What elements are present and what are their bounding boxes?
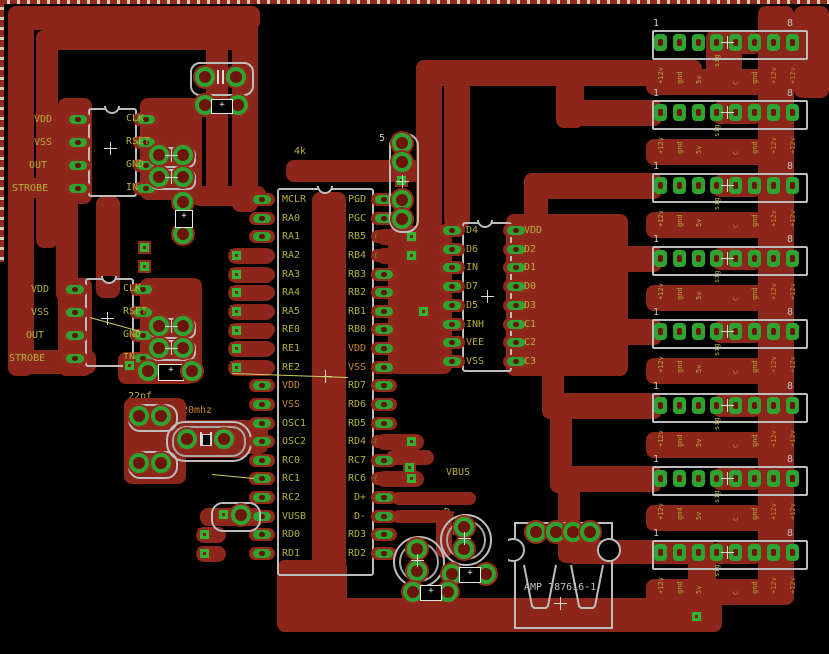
pin-net-label: +12v — [657, 343, 666, 373]
net-label: RB4 — [288, 250, 366, 261]
pad[interactable] — [136, 359, 160, 383]
origin-cross-icon — [721, 179, 734, 192]
pin-net-label: C — [732, 198, 741, 228]
pin-pad[interactable] — [692, 323, 705, 340]
pin-pad[interactable] — [767, 470, 780, 487]
via-pad[interactable] — [230, 286, 243, 299]
pin-net-label: +12v — [657, 197, 666, 227]
via-pad[interactable] — [230, 342, 243, 355]
pin-pad[interactable] — [654, 177, 667, 194]
pad[interactable] — [65, 182, 91, 195]
pin-pad[interactable] — [654, 397, 667, 414]
pin-pad[interactable] — [673, 470, 686, 487]
net-label: C3 — [524, 356, 536, 367]
origin-cross-icon — [721, 472, 734, 485]
pin-net-label: gnd — [751, 343, 760, 373]
pad[interactable] — [62, 283, 88, 296]
pin-net-label: +12v — [770, 124, 779, 154]
net-label: RB0 — [288, 324, 366, 335]
pad[interactable] — [249, 212, 275, 225]
pin-pad[interactable] — [692, 397, 705, 414]
origin-cross-icon — [721, 325, 734, 338]
pad[interactable] — [371, 361, 397, 374]
pin-net-label: 5v — [695, 343, 704, 373]
header-pin8-label: 8 — [787, 381, 793, 392]
pad[interactable] — [371, 305, 397, 318]
origin-cross-icon — [481, 290, 494, 303]
pin-net-label: +12v — [789, 417, 798, 447]
pad[interactable] — [65, 136, 91, 149]
net-label: RB2 — [288, 287, 366, 298]
pin-pad[interactable] — [692, 250, 705, 267]
origin-cross-icon — [721, 36, 734, 49]
header-pin1-label: 1 — [653, 234, 659, 245]
pin-pad[interactable] — [786, 177, 799, 194]
pad[interactable] — [229, 503, 253, 527]
pad[interactable] — [212, 427, 236, 451]
pin-net-label: +12v — [657, 54, 666, 84]
pin-pad[interactable] — [767, 544, 780, 561]
pin-net-label: gnd — [676, 124, 685, 154]
origin-cross-icon — [411, 554, 424, 567]
pin-pad[interactable] — [767, 397, 780, 414]
net-label: D+ — [288, 492, 366, 503]
pad[interactable] — [371, 286, 397, 299]
pad[interactable] — [127, 451, 151, 475]
pin-net-label: +12v — [789, 54, 798, 84]
capacitor-symbol-icon — [217, 70, 219, 84]
pin-net-label: C — [732, 125, 741, 155]
board-edge-top — [0, 0, 829, 4]
origin-cross-icon — [721, 399, 734, 412]
pin-net-label: gnd — [676, 270, 685, 300]
pin-pad[interactable] — [748, 34, 761, 51]
net-label: RD6 — [288, 399, 366, 410]
pin-net-label: +12v — [789, 343, 798, 373]
pin-pad[interactable] — [786, 470, 799, 487]
pin-net-label: 5v — [695, 124, 704, 154]
pin-net-label: gnd — [751, 270, 760, 300]
via-pad[interactable] — [230, 305, 243, 318]
pad[interactable] — [371, 323, 397, 336]
pin-pad[interactable] — [767, 104, 780, 121]
resistor-body[interactable]: + — [175, 210, 193, 228]
net-label: D- — [288, 511, 366, 522]
board-edge-left — [0, 0, 4, 262]
header-pin8-label: 8 — [787, 528, 793, 539]
pin-pad[interactable] — [692, 34, 705, 51]
header-pin8-label: 8 — [787, 18, 793, 29]
origin-cross-icon — [554, 597, 567, 610]
net-label: D5 — [466, 300, 478, 311]
pad[interactable] — [249, 547, 275, 560]
net-label: STROBE — [12, 183, 48, 194]
pad[interactable] — [390, 207, 414, 231]
pin-net-label: +12v — [770, 490, 779, 520]
net-label: D0 — [524, 281, 536, 292]
pin-net-label: gnd — [676, 343, 685, 373]
pin-net-label: gnd — [751, 490, 760, 520]
net-label: VEE — [466, 337, 484, 348]
pad[interactable] — [439, 224, 465, 237]
net-label: D3 — [524, 300, 536, 311]
pin-net-label: C — [732, 418, 741, 448]
net-label: RB1 — [288, 306, 366, 317]
pin-pad[interactable] — [692, 470, 705, 487]
pin-pad[interactable] — [654, 470, 667, 487]
pin-net-label: +12v — [789, 490, 798, 520]
pin-pad[interactable] — [748, 470, 761, 487]
net-label: D1 — [524, 262, 536, 273]
header-pin1-label: 1 — [653, 18, 659, 29]
crystal-symbol-box — [202, 434, 211, 446]
copper-trace[interactable] — [392, 492, 476, 505]
pad[interactable] — [371, 417, 397, 430]
pin-pad[interactable] — [673, 323, 686, 340]
net-label: INH — [466, 319, 484, 330]
pad[interactable] — [249, 454, 275, 467]
pin-pad[interactable] — [692, 177, 705, 194]
net-label: RD4 — [288, 436, 366, 447]
net-label: RD3 — [288, 529, 366, 540]
pin-net-label: C — [732, 491, 741, 521]
pin-net-label: +12v — [657, 417, 666, 447]
via-pad[interactable] — [230, 268, 243, 281]
pin-pad[interactable] — [748, 104, 761, 121]
via-pad[interactable] — [198, 528, 211, 541]
net-label: PGD — [288, 194, 366, 205]
pin-net-label: 5v — [695, 564, 704, 594]
header-pin1-label: 1 — [653, 454, 659, 465]
pad[interactable] — [371, 398, 397, 411]
pin-net-label: +12v — [657, 490, 666, 520]
net-label: IN — [466, 262, 478, 273]
net-label: RD2 — [288, 548, 366, 559]
pin-net-label: +12v — [770, 270, 779, 300]
pad[interactable] — [249, 398, 275, 411]
pcb-board-view: 4k 22pf 22pf 20mhz VBUS D+ D- GND AMP 78… — [0, 0, 829, 654]
pad[interactable] — [62, 329, 88, 342]
header-pin1-label: 1 — [653, 161, 659, 172]
pad[interactable] — [371, 454, 397, 467]
pad[interactable] — [371, 510, 397, 523]
origin-cross-icon — [104, 142, 117, 155]
header-pin1-label: 1 — [653, 88, 659, 99]
copper-trace[interactable] — [556, 100, 662, 126]
pin-net-label: gnd — [676, 490, 685, 520]
resistor-body[interactable]: + — [211, 99, 233, 114]
header-pin1-label: 1 — [653, 528, 659, 539]
pin-net-label: gnd — [676, 54, 685, 84]
via-pad[interactable] — [123, 359, 136, 372]
net-label: RD5 — [288, 418, 366, 429]
via-pad[interactable] — [198, 547, 211, 560]
copper-trace[interactable] — [206, 30, 228, 206]
net-label: OUT — [26, 330, 44, 341]
pad[interactable] — [249, 417, 275, 430]
net-label: OUT — [29, 160, 47, 171]
pin-net-label: +12v — [657, 270, 666, 300]
via-pad[interactable] — [417, 305, 430, 318]
pin-net-label: gnd — [751, 54, 760, 84]
pin-net-label: 5v — [695, 197, 704, 227]
icsp-pin5-label: 5 — [379, 133, 385, 144]
origin-cross-icon — [458, 532, 471, 545]
xtal-value-label: 20mhz — [182, 405, 212, 416]
pin-pad[interactable] — [654, 323, 667, 340]
origin-cross-icon — [721, 252, 734, 265]
pad[interactable] — [149, 404, 173, 428]
pad[interactable] — [249, 230, 275, 243]
origin-cross-icon — [165, 149, 178, 162]
pin-net-label: 5v — [695, 417, 704, 447]
pin-net-label: C — [732, 271, 741, 301]
airwire — [212, 474, 254, 479]
pin-net-label: gnd — [751, 417, 760, 447]
pin-pad[interactable] — [786, 397, 799, 414]
net-label: VDD — [288, 343, 366, 354]
pin-net-label: C — [732, 344, 741, 374]
resistor-body[interactable]: + — [459, 567, 481, 583]
origin-cross-icon — [165, 171, 178, 184]
vbus-net-label: VBUS — [446, 467, 470, 478]
pad[interactable] — [439, 280, 465, 293]
pin-pad[interactable] — [654, 250, 667, 267]
net-label: RSET — [123, 306, 147, 317]
pad[interactable] — [224, 65, 248, 89]
capacitor-symbol-icon — [222, 70, 224, 84]
net-label: D7 — [466, 281, 478, 292]
pin-pad[interactable] — [692, 104, 705, 121]
via-pad[interactable] — [138, 260, 151, 273]
via-pad[interactable] — [405, 435, 418, 448]
pin-net-label: +12v — [770, 564, 779, 594]
pad[interactable] — [371, 491, 397, 504]
pad[interactable] — [371, 268, 397, 281]
pin-net-label: +12v — [789, 124, 798, 154]
origin-cross-icon — [396, 175, 409, 188]
net-label: RC7 — [288, 455, 366, 466]
pin-pad[interactable] — [786, 34, 799, 51]
pin-pad[interactable] — [673, 177, 686, 194]
via-pad[interactable] — [230, 324, 243, 337]
net-label: D4 — [466, 225, 478, 236]
net-label: CLK — [126, 113, 144, 124]
pad[interactable] — [175, 427, 199, 451]
via-pad[interactable] — [405, 249, 418, 262]
pin-net-label: 5v — [695, 270, 704, 300]
net-label: VDD — [524, 225, 542, 236]
pad[interactable] — [249, 379, 275, 392]
pin-pad[interactable] — [767, 34, 780, 51]
origin-cross-icon — [165, 320, 178, 333]
copper-trace[interactable] — [8, 6, 260, 30]
net-label: IN — [126, 182, 138, 193]
net-label: PGC — [288, 213, 366, 224]
pin-pad[interactable] — [673, 104, 686, 121]
pad[interactable] — [371, 342, 397, 355]
pad[interactable] — [371, 379, 397, 392]
pin-pad[interactable] — [673, 250, 686, 267]
via-pad[interactable] — [403, 461, 416, 474]
via-pad[interactable] — [230, 249, 243, 262]
pin-net-label: C — [732, 55, 741, 85]
copper-trace[interactable] — [416, 60, 442, 238]
pad[interactable] — [578, 520, 602, 544]
copper-trace[interactable] — [444, 80, 470, 228]
net-label: STROBE — [9, 353, 45, 364]
pin-net-label: +12v — [770, 343, 779, 373]
net-label: CLK — [123, 283, 141, 294]
net-label: RB5 — [288, 231, 366, 242]
net-label: GND — [126, 159, 144, 170]
pin-pad[interactable] — [673, 544, 686, 561]
pin-pad[interactable] — [748, 323, 761, 340]
pin-pad[interactable] — [654, 104, 667, 121]
via-pad[interactable] — [138, 241, 151, 254]
pin-pad[interactable] — [654, 544, 667, 561]
pin-net-label: gnd — [751, 564, 760, 594]
pin-pad[interactable] — [748, 397, 761, 414]
pin-pad[interactable] — [673, 34, 686, 51]
pin-net-label: gnd — [676, 417, 685, 447]
net-label: RSET — [126, 136, 150, 147]
pin-net-label: +12v — [789, 564, 798, 594]
pad[interactable] — [439, 355, 465, 368]
header-pin1-label: 1 — [653, 307, 659, 318]
pad[interactable] — [62, 352, 88, 365]
pad[interactable] — [390, 150, 414, 174]
pad[interactable] — [127, 404, 151, 428]
header-pin1-label: 1 — [653, 381, 659, 392]
pin-net-label: gnd — [676, 564, 685, 594]
pin-pad[interactable] — [786, 104, 799, 121]
pad[interactable] — [371, 528, 397, 541]
pin-net-label: +12v — [770, 54, 779, 84]
pin-pad[interactable] — [786, 250, 799, 267]
pin-pad[interactable] — [767, 250, 780, 267]
pin-pad[interactable] — [692, 544, 705, 561]
pad[interactable] — [439, 318, 465, 331]
net-label: VSS — [31, 307, 49, 318]
pad[interactable] — [439, 336, 465, 349]
pin-net-label: 5v — [695, 490, 704, 520]
pad[interactable] — [439, 261, 465, 274]
net-label: RC6 — [288, 473, 366, 484]
pad[interactable] — [65, 113, 91, 126]
pin-net-label: +12v — [657, 124, 666, 154]
pin-net-label: gnd — [676, 197, 685, 227]
pad[interactable] — [439, 243, 465, 256]
pin-pad[interactable] — [748, 250, 761, 267]
pin-net-label: +12v — [657, 564, 666, 594]
pad[interactable] — [65, 159, 91, 172]
header-pin8-label: 8 — [787, 307, 793, 318]
resistor-body[interactable]: + — [420, 585, 442, 601]
header-pin8-label: 8 — [787, 234, 793, 245]
net-label: VSS — [466, 356, 484, 367]
net-label: VSS — [34, 137, 52, 148]
pin-pad[interactable] — [786, 544, 799, 561]
copper-trace[interactable] — [8, 6, 34, 258]
pin-net-label: +12v — [789, 270, 798, 300]
pin-pad[interactable] — [654, 34, 667, 51]
pin-net-label: +12v — [770, 197, 779, 227]
pin-net-label: 5v — [695, 54, 704, 84]
origin-cross-icon — [721, 106, 734, 119]
origin-cross-icon — [721, 546, 734, 559]
pin-pad[interactable] — [673, 397, 686, 414]
net-label: C2 — [524, 337, 536, 348]
net-label: RB3 — [288, 269, 366, 280]
pin-net-label: +12v — [789, 197, 798, 227]
pin-pad[interactable] — [786, 323, 799, 340]
pad[interactable] — [62, 306, 88, 319]
resistor-value-label: 4k — [294, 146, 306, 157]
via-pad[interactable] — [690, 610, 703, 623]
header-pin8-label: 8 — [787, 88, 793, 99]
origin-cross-icon — [165, 342, 178, 355]
pin-pad[interactable] — [767, 323, 780, 340]
pad[interactable] — [439, 299, 465, 312]
pin-pad[interactable] — [748, 544, 761, 561]
header-pin8-label: 8 — [787, 161, 793, 172]
pin-net-label: gnd — [751, 197, 760, 227]
pad[interactable] — [249, 193, 275, 206]
net-label: D2 — [524, 244, 536, 255]
pin-pad[interactable] — [748, 177, 761, 194]
net-label: VDD — [34, 114, 52, 125]
pin-net-label: C — [732, 565, 741, 595]
net-label: VDD — [31, 284, 49, 295]
pin-pad[interactable] — [767, 177, 780, 194]
header-pin8-label: 8 — [787, 454, 793, 465]
pad[interactable] — [180, 359, 204, 383]
net-label: C1 — [524, 319, 536, 330]
pad[interactable] — [249, 435, 275, 448]
net-label: D6 — [466, 244, 478, 255]
pin-net-label: +12v — [770, 417, 779, 447]
pad[interactable] — [193, 65, 217, 89]
pin-net-label: gnd — [751, 124, 760, 154]
